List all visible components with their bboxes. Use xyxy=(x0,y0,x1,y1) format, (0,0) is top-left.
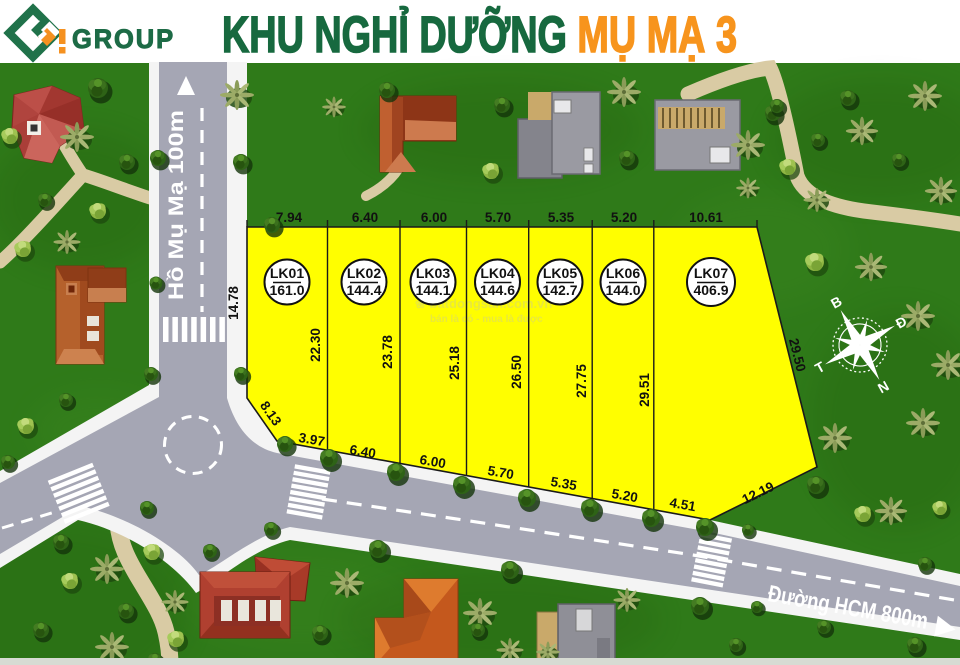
svg-text:LK03: LK03 xyxy=(416,265,450,281)
svg-text:LK04: LK04 xyxy=(480,265,514,281)
svg-text:27.75: 27.75 xyxy=(574,364,589,398)
svg-text:5.20: 5.20 xyxy=(611,210,637,225)
svg-text:6.00: 6.00 xyxy=(421,210,447,225)
svg-text:23.78: 23.78 xyxy=(380,335,395,369)
svg-text:6.40: 6.40 xyxy=(352,210,378,225)
svg-text:29.51: 29.51 xyxy=(637,373,652,407)
svg-text:26.50: 26.50 xyxy=(509,355,524,389)
svg-text:LK01: LK01 xyxy=(270,265,304,281)
svg-text:5.70: 5.70 xyxy=(485,210,511,225)
svg-text:KHU NGHỈ DƯỠNG MỤ MẠ 3: KHU NGHỈ DƯỠNG MỤ MẠ 3 xyxy=(222,5,737,63)
svg-text:LK07: LK07 xyxy=(694,265,728,281)
svg-text:bán là có - mua là được: bán là có - mua là được xyxy=(430,314,543,325)
svg-text:10.61: 10.61 xyxy=(689,210,723,225)
svg-text:14.78: 14.78 xyxy=(226,286,241,320)
svg-text:GROUP: GROUP xyxy=(72,24,175,54)
svg-text:161.0: 161.0 xyxy=(269,282,304,298)
svg-text:144.4: 144.4 xyxy=(346,282,381,298)
svg-text:144.6: 144.6 xyxy=(480,282,515,298)
svg-text:142.7: 142.7 xyxy=(542,282,577,298)
svg-text:Hồ Mụ Mạ 100m: Hồ Mụ Mạ 100m xyxy=(164,110,188,300)
svg-text:22.30: 22.30 xyxy=(308,328,323,362)
svg-text:LK02: LK02 xyxy=(347,265,381,281)
svg-text:144.0: 144.0 xyxy=(605,282,640,298)
svg-text:406.9: 406.9 xyxy=(693,282,728,298)
svg-text:LK05: LK05 xyxy=(543,265,577,281)
svg-text:25.18: 25.18 xyxy=(447,346,462,380)
svg-text:LK06: LK06 xyxy=(606,265,640,281)
svg-text:5.35: 5.35 xyxy=(548,210,575,225)
svg-text:144.1: 144.1 xyxy=(415,282,450,298)
